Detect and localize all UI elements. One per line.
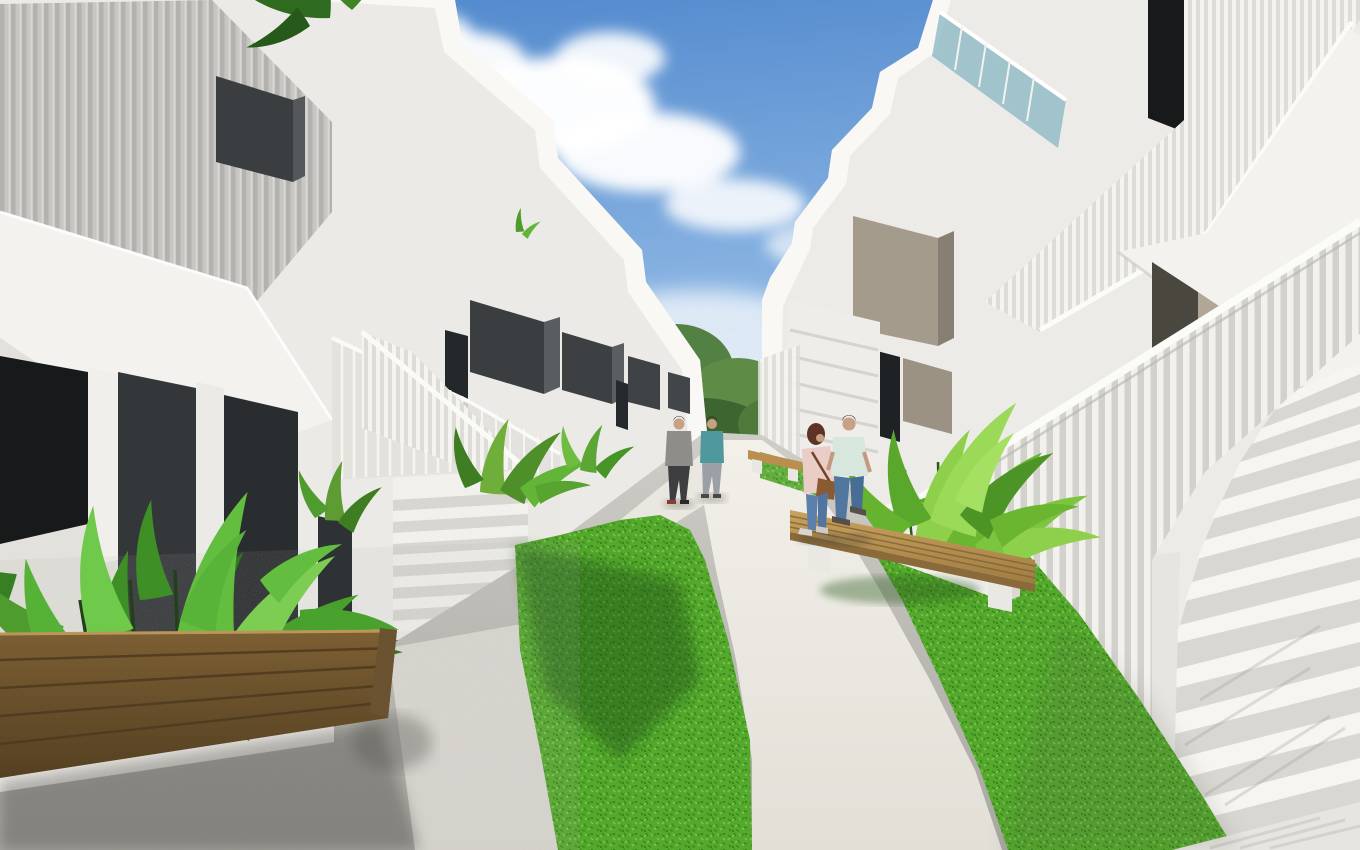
privacy-box-1-side <box>544 317 560 394</box>
privacy-box-4 <box>668 372 690 414</box>
privacy-box-3 <box>628 356 660 410</box>
architectural-render <box>0 0 1360 850</box>
door-opening-dark <box>0 356 88 544</box>
screen-charcoal-side <box>293 96 305 182</box>
taupe-panel-1-side <box>938 231 954 346</box>
right-bench-shadow <box>820 576 980 604</box>
render-canvas <box>0 0 1360 850</box>
window-dark-mid-2 <box>616 380 628 430</box>
upper-window-dark <box>1148 0 1184 132</box>
